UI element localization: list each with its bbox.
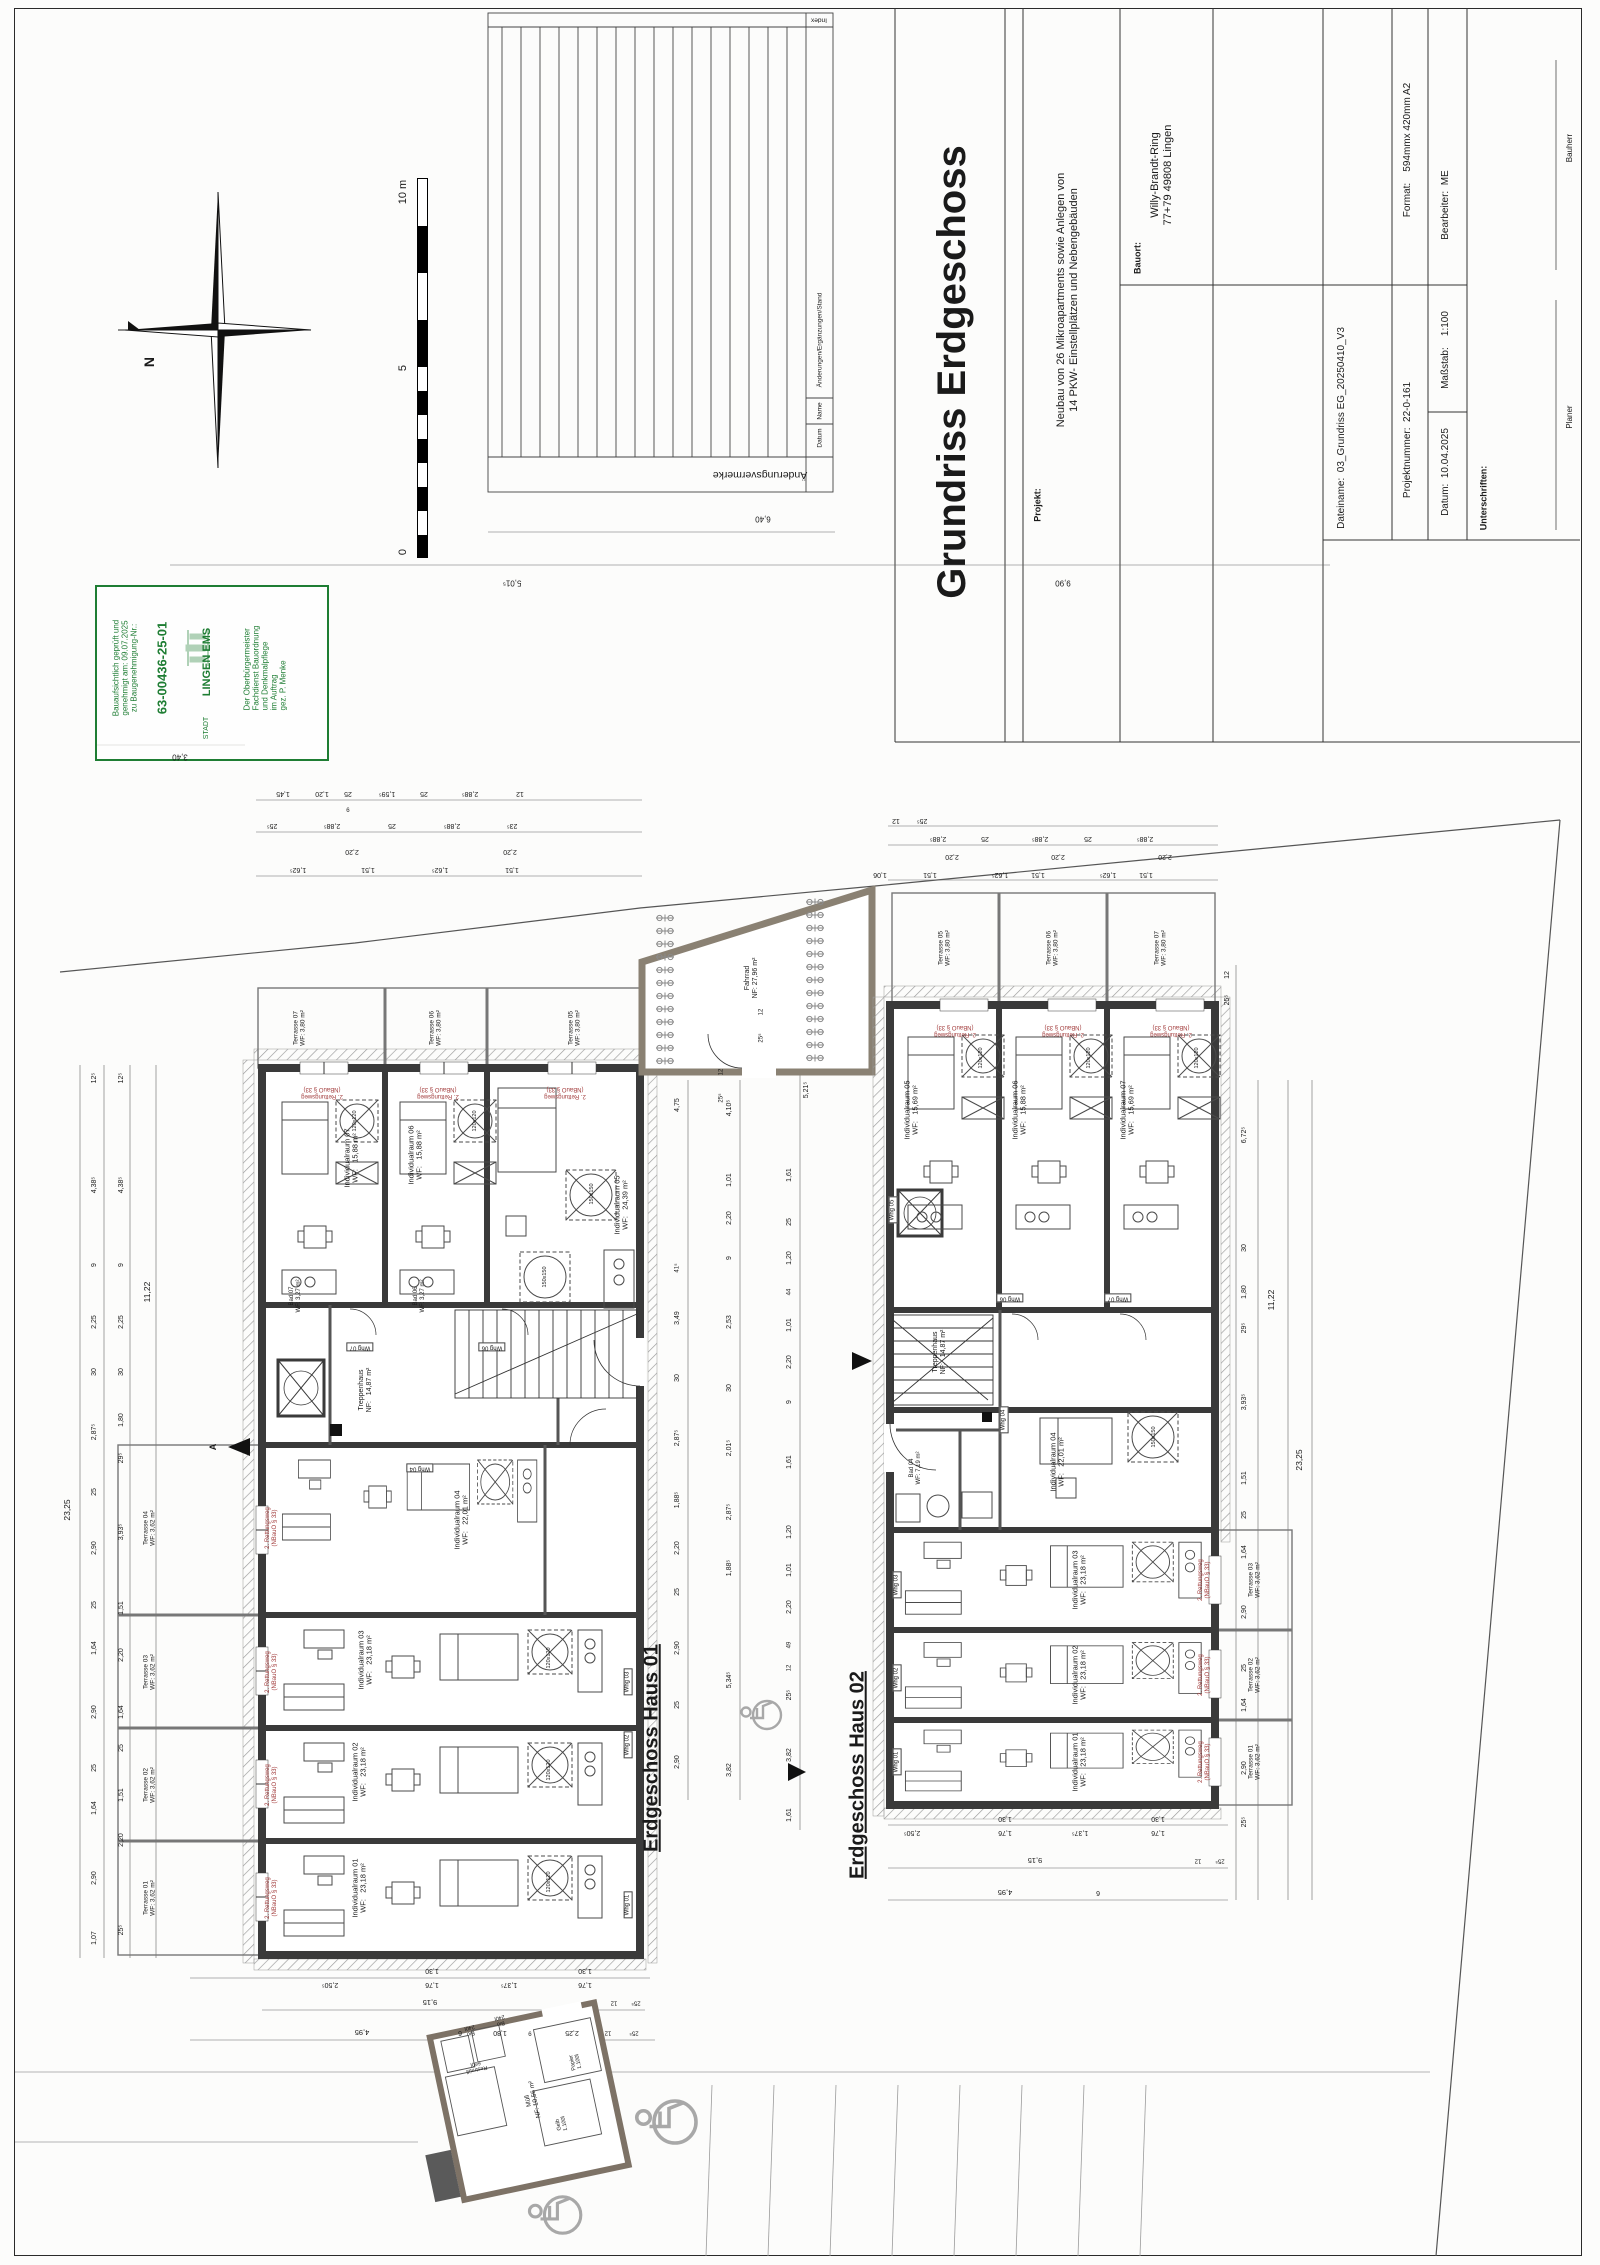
plan-annotation: 2,87⁵ <box>674 1430 682 1447</box>
plan-annotation: 23,25 <box>63 1499 73 1520</box>
plan-annotation: 1,62⁵ <box>1100 870 1117 878</box>
plan-annotation: 25 <box>344 789 352 797</box>
plan-annotation: 6 <box>458 2028 462 2036</box>
haus-01 <box>118 988 657 1970</box>
revision-col-index: Index <box>811 16 827 23</box>
revision-col-datum: Datum <box>816 428 823 447</box>
plan-annotation: Terrasse 01 WF: 3,62 m² <box>143 1880 158 1916</box>
plan-annotation: 1,62⁵ <box>290 865 307 873</box>
site-plan-drawing <box>0 0 1600 2265</box>
plan-annotation: 2,87⁵ <box>726 1504 734 1521</box>
plan-annotation: 4,95 <box>355 2028 370 2036</box>
plan-annotation: 29⁵ <box>118 1453 126 1464</box>
plan-annotation: Whg 07 <box>347 1343 374 1352</box>
stamp-stadt: STADT <box>203 717 211 739</box>
plan-annotation: 1,37⁵ <box>501 1980 518 1988</box>
plan-annotation: 12⁵ <box>118 1073 126 1084</box>
plan-annotation: Treppenhaus NF: 14,87 m² <box>358 1368 374 1413</box>
plan-annotation: 9 <box>346 805 349 812</box>
plan-annotation: 12 <box>605 2029 612 2036</box>
plan-annotation: 1,20 <box>786 1525 794 1539</box>
revision-col-name: Name <box>816 402 823 419</box>
plan-annotation: 5,01⁵ <box>503 578 522 587</box>
plan-annotation: 25 <box>118 1744 126 1752</box>
plan-annotation: 41⁵ <box>675 1263 682 1272</box>
plan-annotation: 12 <box>516 789 524 797</box>
plan-annotation: 12 <box>1224 971 1232 979</box>
plan-annotation: 2,88⁵ <box>444 821 461 829</box>
plan-annotation: 2. Rettungsweg (NBauO § 33) <box>1198 1559 1212 1601</box>
projektnummer: Projektnummer: 22-0-161 <box>1402 382 1414 498</box>
plan-annotation: 1,51 <box>118 1601 126 1615</box>
plan-annotation: 1,20 <box>315 789 329 797</box>
plan-annotation: 2,88⁵ <box>1032 834 1049 842</box>
plan-annotation: Terrasse 04 WF: 3,62 m² <box>143 1510 158 1546</box>
plan-annotation: Terrasse 02 WF: 3,62 m² <box>143 1767 158 1803</box>
plan-annotation: 2,88⁵ <box>930 834 947 842</box>
drawing-sheet: 10 m 5 0 N Bauaufsichtlich geprüft und g… <box>0 0 1600 2265</box>
plan-annotation: 1,59⁵ <box>379 789 396 797</box>
plan-annotation: Whg 06 <box>997 1294 1024 1303</box>
bauort-value: Willy-Brandt-Ring 77+79 49808 Lingen <box>1149 125 1175 226</box>
plan-annotation: 1,62⁵ <box>992 870 1009 878</box>
plan-annotation: 1,01 <box>786 1318 794 1332</box>
plan-annotation: Whg 02 <box>624 1732 633 1759</box>
plan-annotation: 2. Rettungsweg (NBauO § 33) <box>265 1877 279 1919</box>
plan-annotation: 1,37⁵ <box>1072 1828 1089 1836</box>
plan-annotation: Individualraum 06 WF: 15,88 m² <box>1012 1080 1029 1139</box>
plan-annotation: 2,50⁵ <box>322 1980 339 1988</box>
plan-annotation: 1,01 <box>726 1173 734 1187</box>
plan-annotation: 6 <box>1096 1888 1100 1896</box>
scale-label-10m: 10 m <box>397 180 409 204</box>
plan-annotation: 3,82 <box>786 1748 794 1762</box>
plan-annotation: Whg 01 <box>893 1749 902 1776</box>
plan-annotation: Whg 04 <box>407 1464 434 1473</box>
plan-annotation: 2. Rettungsweg (NBauO § 33) <box>417 1085 459 1099</box>
plan-annotation: Whg 07 <box>1105 1294 1132 1303</box>
plan-annotation: 12 <box>1195 1857 1202 1864</box>
plan-annotation: 1,30 <box>998 1814 1012 1822</box>
plan-annotation: 1,51 <box>505 865 519 873</box>
plan-annotation: 2,90 <box>91 1541 99 1555</box>
plan-annotation: 1,76 <box>1151 1828 1165 1836</box>
plan-annotation: Individualraum 06 WF: 15,88 m² <box>408 1125 425 1184</box>
plan-annotation: 2,90 <box>1241 1761 1249 1775</box>
plan-annotation: Terrasse 07 WF: 3,80 m² <box>1154 930 1169 966</box>
format: Format: 594mmx 420mm A2 <box>1402 83 1414 218</box>
plan-annotation: 120x120 <box>352 1110 358 1131</box>
plan-annotation: Individualraum 02 WF: 23,18 m² <box>1072 1645 1089 1704</box>
plan-annotation: 1,30 <box>578 1966 592 1974</box>
plan-annotation: 2,88⁵ <box>324 821 341 829</box>
plan-annotation: 25⁵ <box>267 821 278 829</box>
plan-annotation: 2. Rettungsweg (NBauO § 33) <box>265 1764 279 1806</box>
north-label: N <box>142 357 158 367</box>
plan-annotation: 3,82 <box>726 1763 734 1777</box>
plan-annotation: Individualraum 05 WF: 15,69 m² <box>904 1080 921 1139</box>
plan-annotation: Individualraum 02 WF: 23,18 m² <box>352 1742 369 1801</box>
plan-annotation: 25 <box>981 834 989 842</box>
plan-annotation: 4,95 <box>998 1888 1013 1896</box>
plan-annotation: 1,61 <box>786 1808 794 1822</box>
plan-annotation: 1,51 <box>1031 870 1045 878</box>
plan-annotation: Terrasse 05 WF: 3,80 m² <box>938 930 953 966</box>
plan-annotation: 30 <box>1241 1244 1249 1252</box>
plan-annotation: 2,88⁵ <box>462 789 479 797</box>
plan-annotation: Whg 05 <box>889 1197 898 1224</box>
plan-annotation: 9 <box>726 1256 734 1260</box>
plan-annotation: 2,90 <box>674 1641 682 1655</box>
dateiname: Dateiname: 03_Grundriss EG_20250410_V3 <box>1336 327 1348 529</box>
plan-annotation: 25 <box>1241 1511 1249 1519</box>
plan-annotation: Erdgeschoss Haus 02 <box>847 1671 870 1879</box>
plan-annotation: 9,90 <box>1055 578 1071 587</box>
plan-annotation: 25⁵ <box>1224 995 1232 1006</box>
plan-annotation: 2,25 <box>91 1315 99 1329</box>
plan-annotation: 9,15 <box>1028 1856 1043 1864</box>
plan-annotation: 1,20 <box>786 1251 794 1265</box>
plan-annotation: 2,90 <box>91 1871 99 1885</box>
plan-annotation: 11,22 <box>1267 1290 1277 1311</box>
plan-annotation: Bad 04 WF: 7,19 m² <box>909 1451 923 1484</box>
plan-annotation: 25⁵ <box>1215 1857 1224 1864</box>
plan-annotation: 1,06 <box>873 870 887 878</box>
plan-annotation: 120x120 <box>1086 1047 1092 1068</box>
plan-annotation: 12 <box>787 1665 794 1672</box>
plan-annotation: Terrasse 01 WF: 3,62 m² <box>1248 1744 1263 1780</box>
revision-table-grid <box>488 13 833 492</box>
plan-annotation: Terrasse 03 WF: 3,62 m² <box>143 1654 158 1690</box>
plan-annotation: 2,20 <box>1158 852 1172 860</box>
title-block-grid <box>895 8 1580 742</box>
plan-annotation: 2,25 <box>565 2028 579 2036</box>
plan-annotation: 29⁵ <box>1241 1323 1249 1334</box>
plan-annotation: 9 <box>786 1400 794 1404</box>
plan-annotation: 25 <box>388 821 396 829</box>
plan-annotation: 2,20 <box>674 1541 682 1555</box>
plan-annotation: 30 <box>726 1384 734 1392</box>
plan-annotation: 25⁵ <box>1241 1817 1249 1828</box>
plan-annotation: Individualraum 07 WF: 15,88 m² <box>344 1128 361 1187</box>
plan-annotation: Erdgeschoss Haus 01 <box>641 1644 664 1852</box>
site-paths <box>15 2072 1430 2256</box>
plan-annotation: 25⁵ <box>631 1999 640 2006</box>
scale-bar <box>417 178 428 558</box>
plan-annotation: Terrasse 06 WF: 3,80 m² <box>1046 930 1061 966</box>
bauort-label: Bauort: <box>1133 242 1144 274</box>
plan-annotation: 1,62⁵ <box>432 865 449 873</box>
plan-annotation: Terrasse 02 WF: 3,62 m² <box>1248 1657 1263 1693</box>
plan-annotation: Bad 06 WF: 3,27 m² <box>413 1279 427 1312</box>
stamp-lingen-ems: LINGEN EMS <box>201 628 213 696</box>
plan-annotation: 1,64 <box>91 1801 99 1815</box>
plan-annotation: Individualraum 03 WF: 23,18 m² <box>1072 1550 1089 1609</box>
plan-annotation: 1,51 <box>1241 1471 1249 1485</box>
plan-annotation: 1,51 <box>361 865 375 873</box>
plan-annotation: 1,01 <box>786 1563 794 1577</box>
plan-annotation: Individualraum 01 WF: 23,18 m² <box>352 1858 369 1917</box>
plan-annotation: 2,20 <box>786 1355 794 1369</box>
plan-annotation: 1,88⁵ <box>674 1492 682 1509</box>
plan-annotation: 23⁵ <box>507 821 518 829</box>
plan-annotation: 49 <box>787 1642 794 1649</box>
plan-annotation: 9 <box>91 1263 99 1267</box>
plan-annotation: 1,80 <box>1241 1285 1249 1299</box>
plan-annotation: 3,49 <box>674 1311 682 1325</box>
plan-annotation: 2,90 <box>674 1755 682 1769</box>
plan-annotation: 25 <box>674 1701 682 1709</box>
plan-annotation: 1,88⁵ <box>726 1560 734 1577</box>
plan-annotation: 2,90 <box>1241 1605 1249 1619</box>
plan-annotation: 120x120 <box>978 1047 984 1068</box>
plan-annotation: Individualraum 07 WF: 15,69 m² <box>1120 1080 1137 1139</box>
plan-annotation: Fahrrad NF: 27,96 m² <box>744 958 760 999</box>
stamp-file-number: 63-00436-25-01 <box>156 622 171 715</box>
plan-annotation: 25⁵ <box>917 816 928 824</box>
plan-annotation: 25 <box>91 1764 99 1772</box>
plan-annotation: 12⁵ <box>91 1073 99 1084</box>
plan-annotation: Whg 02 <box>893 1665 902 1692</box>
plan-annotation: 1,64 <box>91 1641 99 1655</box>
plan-annotation: 5,21⁵ <box>803 1082 811 1099</box>
plan-annotation: Individualraum 04 WF: 22,01 m² <box>454 1490 471 1549</box>
plan-annotation: Individualraum 05 WF: 24,39 m² <box>614 1175 631 1234</box>
plan-annotation: 120x120 <box>546 1871 552 1892</box>
plan-annotation: 120x120 <box>546 1759 552 1780</box>
plan-annotation: 4,75 <box>674 1098 682 1112</box>
plan-annotation: 1,76 <box>578 1980 592 1988</box>
plan-annotation: 25 <box>420 789 428 797</box>
plan-annotation: 25 <box>1241 1664 1249 1672</box>
plan-annotation: 1,30 <box>425 1966 439 1974</box>
plan-annotation: 1,51 <box>923 870 937 878</box>
stamp-approval-text: Bauaufsichtlich geprüft und genehmigt am… <box>111 620 138 717</box>
plan-annotation: 1,51 <box>118 1788 126 1802</box>
plan-annotation: Whg 04 <box>1000 1407 1009 1434</box>
plan-annotation: 25⁵ <box>719 1093 726 1102</box>
plan-annotation: 1,51 <box>1139 870 1153 878</box>
plan-annotation: A <box>208 1444 218 1451</box>
plan-annotation: 150x150 <box>589 1183 595 1204</box>
wheelchair-icon <box>529 2197 580 2233</box>
plan-annotation: 3,40 <box>172 752 188 761</box>
plan-annotation: 1,80 <box>118 1413 126 1427</box>
plan-annotation: 4,10⁵ <box>726 1100 734 1117</box>
plan-annotation: 12 <box>611 1999 618 2006</box>
plan-annotation: Individualraum 04 WF: 22,01 m² <box>1050 1432 1067 1491</box>
plan-annotation: 2,20 <box>1051 852 1065 860</box>
plan-annotation: Terrasse 03 WF: 3,62 m² <box>1248 1562 1263 1598</box>
plan-annotation: 25⁵ <box>759 1033 766 1042</box>
plan-annotation: 25 <box>91 1601 99 1609</box>
section-marker-c <box>788 1763 806 1781</box>
plan-annotation: 1,76 <box>998 1828 1012 1836</box>
bauherr: Bauherr <box>1565 134 1575 162</box>
plan-annotation: 25 <box>91 1488 99 1496</box>
plan-annotation: 2. Rettungsweg (NBauO § 33) <box>934 1023 976 1037</box>
plan-annotation: 2,20 <box>345 847 359 855</box>
plan-annotation: 9,15 <box>423 1998 438 2006</box>
plan-annotation: 44 <box>787 1289 794 1296</box>
plan-annotation: 25 <box>674 1588 682 1596</box>
plan-annotation: 9 <box>528 2029 531 2036</box>
plan-annotation: 3,93⁵ <box>1241 1394 1249 1411</box>
plan-annotation: 1,76 <box>425 1980 439 1988</box>
plan-annotation: 2,01⁵ <box>726 1440 734 1457</box>
projekt-value: Neubau von 26 Mikroapartments sowie Anle… <box>1055 173 1081 427</box>
plan-annotation: 2. Rettungsweg (NBauO § 33) <box>544 1085 586 1099</box>
plan-annotation: 1,64 <box>118 1705 126 1719</box>
plan-annotation: Terrasse 07 WF: 3,80 m² <box>293 1010 308 1046</box>
plan-annotation: 2,20 <box>786 1600 794 1614</box>
sheet-title: Grundriss Erdgeschoss <box>928 145 976 598</box>
datum: Datum: 10.04.2025 <box>1440 428 1452 516</box>
plan-annotation: 1,30 <box>1151 1814 1165 1822</box>
scale-label-0: 0 <box>397 549 409 555</box>
plan-annotation: 2,20 <box>945 852 959 860</box>
bearbeiter: Bearbeiter: ME <box>1440 170 1452 239</box>
plan-annotation: Bad 07 WF: 3,27 m² <box>289 1279 303 1312</box>
wheelchair-icon <box>742 1701 782 1729</box>
plan-annotation: Bio 240l <box>494 2013 507 2027</box>
plan-annotation: 2. Rettungsweg (NBauO § 33) <box>1198 1654 1212 1696</box>
plan-annotation: 12 <box>759 1009 766 1016</box>
plan-annotation: Whg 03 <box>624 1669 633 1696</box>
plan-annotation: 2,20 <box>503 847 517 855</box>
plan-annotation: 25 <box>786 1218 794 1226</box>
plan-annotation: Terrasse 05 WF: 3,80 m² <box>568 1010 583 1046</box>
plan-annotation: Treppenhaus NF: 14,87 m² <box>932 1330 948 1375</box>
plan-annotation: 25⁵ <box>629 2029 638 2036</box>
plan-annotation: 2,20 <box>726 1211 734 1225</box>
stamp-office-text: Der Oberbürgermeister Fachdienst Bauordn… <box>242 626 287 711</box>
plan-annotation: 25 <box>1084 834 1092 842</box>
plan-annotation: 2,25 <box>118 1315 126 1329</box>
plan-annotation: 6,40 <box>755 514 771 523</box>
plan-annotation: Terrasse 06 WF: 3,80 m² <box>429 1010 444 1046</box>
north-compass-icon <box>118 192 311 468</box>
plan-annotation: 9 <box>118 1263 126 1267</box>
plan-annotation: 1,64 <box>1241 1698 1249 1712</box>
massstab: Maßstab: 1:100 <box>1440 311 1452 389</box>
plan-annotation: 1,64 <box>1241 1545 1249 1559</box>
plan-annotation: 4,38⁵ <box>91 1177 99 1194</box>
plan-annotation: 2. Rettungsweg (NBauO § 33) <box>265 1651 279 1693</box>
plan-annotation: 3,93⁵ <box>118 1524 126 1541</box>
plan-annotation: 25⁵ <box>118 1925 126 1936</box>
section-marker-a <box>228 1438 250 1456</box>
plan-annotation: Individualraum 01 WF: 23,18 m² <box>1072 1732 1089 1791</box>
plan-annotation: 5,34⁵ <box>726 1672 734 1689</box>
plan-annotation: 1,61 <box>786 1455 794 1469</box>
plan-annotation: 12 <box>719 1069 726 1076</box>
plan-annotation: 1,45 <box>276 789 290 797</box>
plan-annotation: 2. Rettungsweg (NBauO § 33) <box>1198 1741 1212 1783</box>
plan-annotation: 25⁵ <box>786 1690 794 1701</box>
revision-table-title: Änderungsvermerke <box>713 468 808 480</box>
plan-annotation: 2,20 <box>118 1833 126 1847</box>
plan-annotation: 2. Rettungsweg (NBauO § 33) <box>1150 1023 1192 1037</box>
plan-annotation: 2,87⁵ <box>91 1424 99 1441</box>
plan-annotation: 2,90 <box>91 1705 99 1719</box>
plan-annotation: 11,22 <box>143 1282 153 1303</box>
plan-annotation: 2. Rettungsweg (NBauO § 33) <box>1042 1023 1084 1037</box>
section-marker-b <box>852 1352 872 1370</box>
plan-annotation: 2,20 <box>118 1648 126 1662</box>
plan-annotation: 150x150 <box>542 1266 548 1287</box>
plan-annotation: Individualraum 03 WF: 23,18 m² <box>358 1630 375 1689</box>
plan-annotation: 4,38⁵ <box>118 1177 126 1194</box>
scale-label-5: 5 <box>397 365 409 371</box>
plan-annotation: 2,53 <box>726 1315 734 1329</box>
plan-annotation: Whg 03 <box>893 1572 902 1599</box>
plan-annotation: 1,61 <box>786 1168 794 1182</box>
wheelchair-icon <box>637 2101 696 2143</box>
plan-annotation: 30 <box>91 1368 99 1376</box>
plan-annotation: 12 <box>892 816 900 824</box>
revision-col-aenderungen: Änderungen/Ergänzungen/Stand <box>816 293 823 388</box>
plan-annotation: 2. Rettungsweg (NBauO § 33) <box>301 1085 343 1099</box>
planer: Planer <box>1565 405 1575 428</box>
plan-annotation: 2,50⁵ <box>904 1828 921 1836</box>
plan-annotation: 30 <box>118 1368 126 1376</box>
plan-annotation: 1,80 <box>493 2028 507 2036</box>
plan-annotation: 30 <box>674 1374 682 1382</box>
plan-annotation: 2. Rettungsweg (NBauO § 33) <box>265 1507 279 1549</box>
plan-annotation: 120x120 <box>546 1647 552 1668</box>
plan-annotation: 2,88⁵ <box>1137 834 1154 842</box>
plan-annotation: Bio 240l <box>464 2023 477 2037</box>
plan-annotation: Whg 06 <box>479 1343 506 1352</box>
plan-annotation: 1,07 <box>91 1931 99 1945</box>
projekt-label: Projekt: <box>1033 488 1044 522</box>
plan-annotation: 23,25 <box>1295 1449 1305 1470</box>
plan-annotation: 120x120 <box>1194 1047 1200 1068</box>
plan-annotation: 120x120 <box>472 1110 478 1131</box>
plan-annotation: 6,72⁵ <box>1241 1127 1249 1144</box>
plan-annotation: Whg 01 <box>624 1892 633 1919</box>
unterschriften: Unterschriften: <box>1479 466 1490 531</box>
plan-annotation: 150x150 <box>1151 1426 1157 1447</box>
